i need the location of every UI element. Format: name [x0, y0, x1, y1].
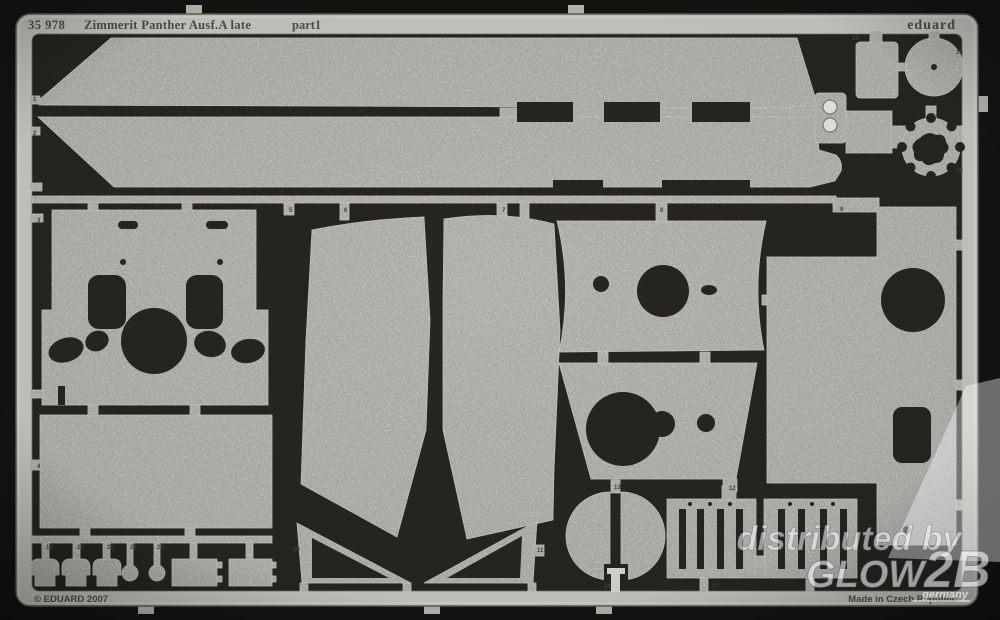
tab	[956, 380, 962, 390]
tab	[272, 576, 276, 582]
pe-part-hatch-plate	[856, 42, 898, 98]
pe-part-cap	[31, 559, 59, 586]
pe-part-hull-strip-lower	[38, 117, 841, 187]
pe-part-cap	[93, 559, 121, 586]
part-number-label: 20	[77, 545, 84, 551]
part-number-label: 11	[537, 548, 544, 554]
tab	[88, 405, 98, 416]
strip-connector-neck	[790, 106, 818, 118]
sheet-part-label: part1	[292, 18, 321, 32]
pe-part-hull-strip-upper	[39, 38, 816, 108]
tab	[700, 578, 708, 592]
product-photo-eduard-photoetch-fret: 35 978 Zimmerit Panther Ausf.A late part…	[0, 0, 1000, 620]
tab	[190, 405, 200, 416]
part-number-label: 22	[130, 545, 137, 551]
pe-part-small-plate	[172, 559, 217, 586]
copyright-text: © EDUARD 2007	[34, 594, 108, 605]
tab	[300, 583, 308, 591]
brand-logo-text: eduard	[907, 18, 956, 33]
part-number-label: 26	[956, 168, 963, 174]
pe-part-small-plate	[229, 559, 272, 586]
tab	[217, 562, 222, 568]
part-number-label: 12	[729, 486, 736, 492]
catalog-number: 35 978	[28, 18, 65, 32]
tab	[88, 202, 98, 211]
fret-bridge-square	[846, 111, 892, 153]
tab	[700, 352, 710, 364]
tab	[898, 63, 907, 71]
watermark-country: germany	[921, 589, 969, 601]
part-number-label: 13	[614, 485, 621, 491]
part-number-label: 19	[46, 545, 53, 551]
tab	[528, 583, 536, 591]
tab	[870, 31, 882, 44]
pe-part-small-disc	[149, 565, 165, 581]
part-number-label: 10	[293, 547, 300, 553]
tab	[30, 390, 43, 398]
comb-bridge	[755, 556, 765, 578]
tab	[217, 576, 222, 582]
pe-part-turret-side-right	[443, 215, 560, 539]
part-number-label: 15	[852, 36, 859, 42]
pe-part-hull-plate	[40, 415, 272, 528]
sheet-title: Zimmerit Panther Ausf.A late	[84, 18, 251, 32]
sprue-rail-top	[30, 196, 836, 203]
part-number-label: 23	[157, 545, 164, 551]
tab	[956, 240, 962, 250]
tab	[182, 202, 192, 211]
pe-part-cap	[62, 559, 90, 586]
tab	[30, 183, 42, 191]
tab	[598, 352, 608, 364]
watermark-country-underline	[912, 600, 970, 602]
part-number-label: 14	[604, 584, 611, 590]
tab	[403, 583, 411, 591]
tab	[957, 63, 963, 71]
tab	[272, 562, 276, 568]
tab	[190, 543, 197, 560]
tab	[246, 543, 253, 560]
pe-part-rear-hull-panel	[42, 210, 268, 405]
sprue-rail-bottom-left	[30, 536, 272, 543]
part-number-label: 17	[712, 584, 719, 590]
photoetch-fret-image: 35 978 Zimmerit Panther Ausf.A late part…	[0, 0, 1000, 620]
part-number-label: 16	[956, 50, 963, 56]
part-number-label: 21	[107, 545, 114, 551]
pe-part-small-disc	[122, 565, 138, 581]
